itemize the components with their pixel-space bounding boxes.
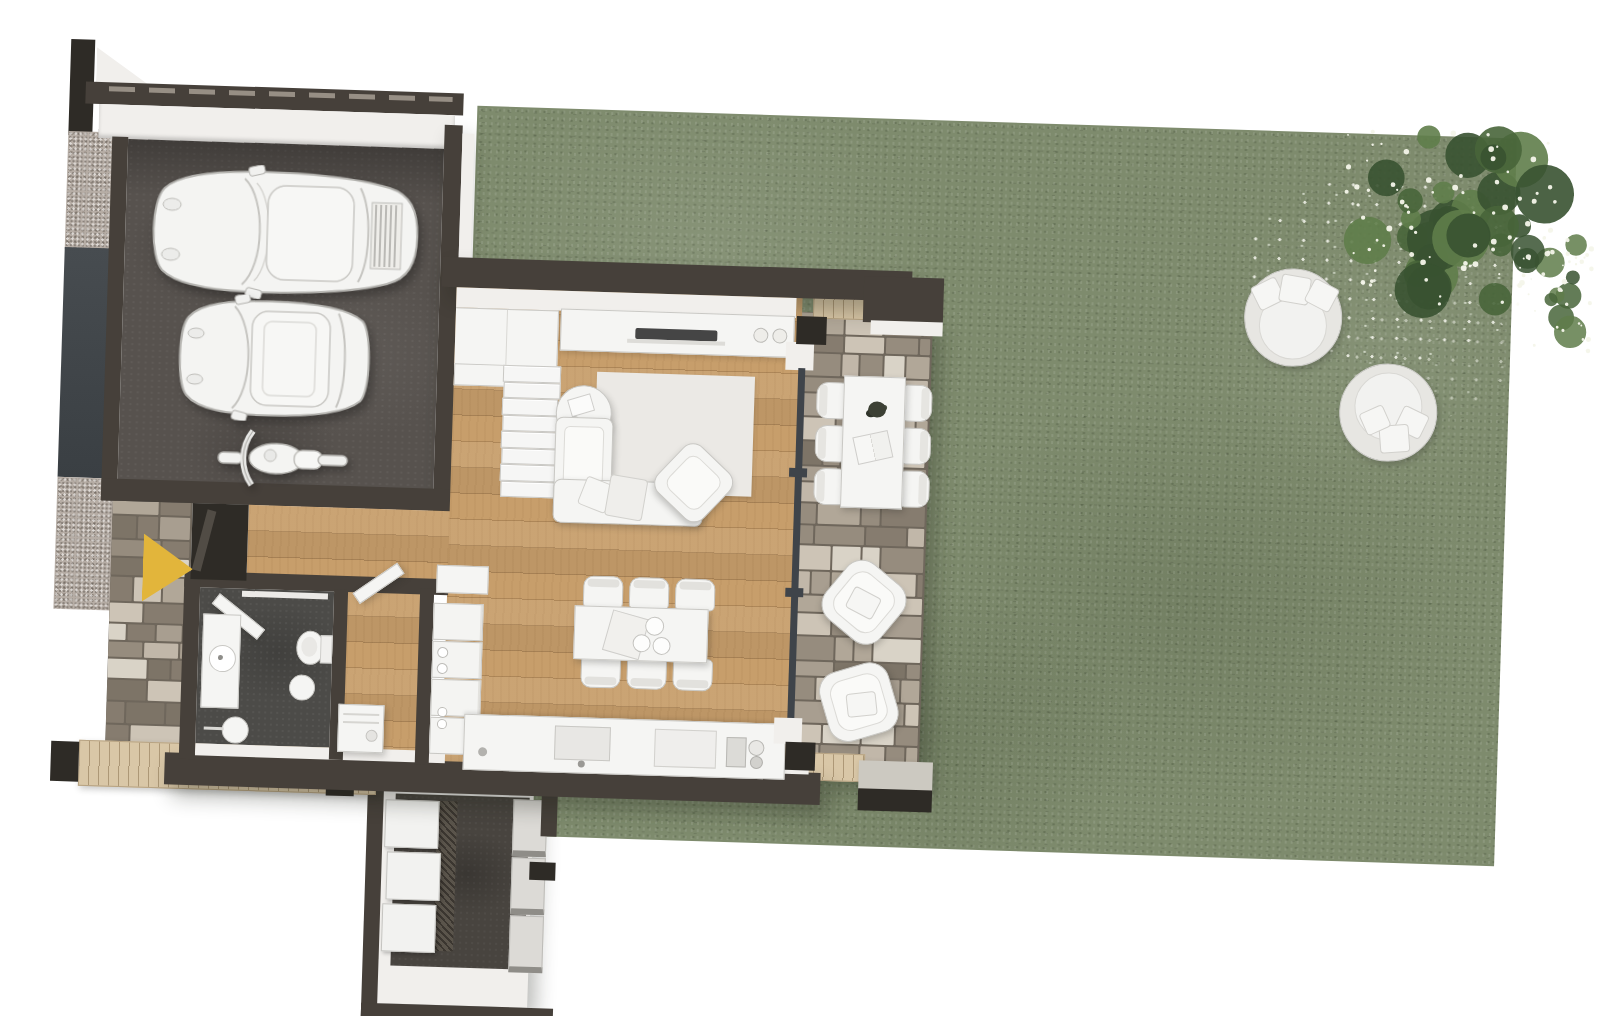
open-book	[852, 430, 893, 465]
utility-upper-cabinet	[436, 565, 489, 595]
appliance-unit	[433, 603, 484, 642]
tree-foliage	[1589, 246, 1594, 251]
sports-car	[141, 161, 427, 304]
chair-back	[633, 580, 665, 589]
tree-foliage	[1426, 177, 1432, 183]
tree-foliage	[1498, 273, 1500, 275]
tree-foliage	[1478, 282, 1511, 315]
outdoor-chair	[816, 382, 846, 420]
door-handle-tab	[785, 588, 803, 598]
stone-tile	[160, 517, 190, 539]
tree-foliage	[1528, 293, 1530, 295]
throw-blanket	[604, 474, 649, 522]
tree-foliage	[1344, 190, 1348, 194]
chair-back	[816, 471, 825, 502]
washing-machine	[337, 704, 384, 753]
outdoor-chair	[900, 470, 930, 508]
tree-foliage	[1586, 337, 1591, 342]
kitchen-counter	[463, 714, 787, 780]
stool-handle	[204, 727, 224, 731]
decor-bowl	[753, 328, 768, 343]
outdoor-dining-table	[840, 375, 906, 509]
tree-foliage	[1354, 184, 1359, 189]
outdoor-chair	[901, 427, 931, 465]
lounge-pillow	[845, 691, 877, 718]
chair-back	[630, 678, 662, 687]
chair-back	[919, 431, 928, 462]
armchair-cushion	[663, 452, 725, 514]
stone-tile	[147, 681, 185, 702]
chair-back	[818, 428, 827, 459]
stone-tile	[835, 637, 853, 661]
dining-chair	[629, 577, 670, 610]
stone-tile	[907, 665, 920, 679]
chair-back	[587, 579, 619, 588]
tree-foliage	[1389, 294, 1392, 297]
exterior-step	[508, 915, 544, 973]
tree-foliage	[1522, 273, 1526, 277]
stone-tile	[884, 356, 904, 379]
tree-foliage	[1589, 267, 1594, 272]
stone-tile	[860, 355, 883, 378]
stone-tile	[109, 602, 142, 622]
tree-foliage	[1374, 269, 1377, 272]
door-handle-tab	[789, 468, 807, 478]
stone-tile	[901, 680, 920, 703]
stone-tile	[881, 506, 925, 527]
tree-foliage	[1542, 236, 1546, 240]
stair-step	[503, 381, 560, 399]
patio-corner-wall	[863, 276, 944, 324]
stone-tile	[905, 705, 918, 726]
outdoor-chair	[814, 425, 844, 463]
vanity-sink	[200, 613, 241, 708]
outdoor-chair	[903, 384, 933, 422]
cooktop	[654, 729, 717, 769]
stone-tile	[845, 337, 884, 354]
stone-tile	[842, 354, 858, 377]
stone-tile	[126, 702, 165, 725]
stair-step	[501, 447, 557, 465]
tree-foliage	[1548, 228, 1553, 233]
garage-door-segments	[108, 86, 452, 102]
cabinet-seam	[505, 310, 508, 366]
stone-tile	[917, 575, 923, 597]
stone-tile	[108, 624, 126, 640]
dining-chair	[675, 578, 716, 611]
stair-step	[503, 365, 561, 383]
coffee-machine	[726, 737, 747, 768]
tree-foliage	[1347, 134, 1349, 136]
stone-tile	[108, 641, 142, 657]
tree-foliage	[1579, 260, 1584, 265]
stair-step	[502, 414, 560, 432]
compact-car	[169, 292, 381, 424]
stone-tile	[112, 516, 137, 538]
tree-foliage	[1371, 130, 1375, 134]
tree-foliage	[1534, 310, 1536, 312]
tree-foliage	[1367, 159, 1405, 197]
chair-back	[819, 385, 828, 416]
patio-corner-face	[870, 320, 942, 336]
sink-faucet	[578, 760, 585, 767]
stone-tile	[107, 679, 146, 700]
chair-back	[584, 676, 616, 685]
wall-stub	[785, 742, 816, 771]
wall-stub	[796, 316, 827, 345]
tree-foliage	[1585, 253, 1589, 257]
cellar-step-block	[529, 862, 556, 881]
washer-line	[343, 713, 379, 716]
small-appliance	[750, 756, 763, 769]
stone-tile	[106, 701, 125, 723]
stone-tile	[144, 642, 179, 658]
tree-foliage	[1404, 149, 1410, 155]
stone-tile	[919, 339, 930, 355]
tree-foliage	[1547, 142, 1550, 145]
storage-box	[385, 851, 440, 901]
entry-vestibule	[190, 503, 248, 581]
stone-tile	[128, 624, 155, 640]
flowering-tree	[1290, 101, 1598, 372]
stone-tile	[908, 528, 924, 546]
tree-foliage	[1346, 164, 1351, 169]
dining-table	[573, 605, 709, 663]
counter-fixture	[478, 747, 487, 756]
floor-plan-canvas	[0, 0, 1598, 1016]
chair-back	[676, 679, 708, 688]
stone-tile	[111, 558, 146, 576]
tree-foliage	[1343, 216, 1392, 265]
storage-box	[384, 799, 439, 849]
stone-tile	[881, 547, 924, 572]
chair-back	[921, 388, 930, 419]
stone-tile	[866, 527, 907, 546]
floor-plan	[0, 0, 1598, 1016]
tree-foliage	[1568, 260, 1571, 263]
tree-foliage	[1533, 344, 1536, 347]
tree-foliage	[1450, 131, 1456, 137]
tree-foliage	[1370, 279, 1374, 283]
deck-post	[50, 741, 79, 782]
toilet-tank	[320, 635, 333, 663]
chair-back	[679, 581, 711, 590]
stair-step	[500, 480, 557, 498]
stair-step	[500, 464, 558, 482]
staircase	[499, 365, 559, 499]
plate	[632, 634, 651, 653]
stone-tile	[107, 658, 146, 679]
motorcycle	[213, 424, 351, 496]
tree-foliage	[1371, 143, 1374, 146]
washer-line	[343, 721, 379, 724]
plate	[645, 616, 665, 636]
kettle	[748, 740, 764, 756]
stone-tile	[906, 356, 930, 379]
door-jamb	[774, 717, 803, 744]
tree-foliage	[1583, 256, 1585, 258]
plant-centerpiece	[868, 401, 886, 418]
sink	[554, 726, 611, 762]
chair-back	[918, 474, 927, 505]
cabinet-bench	[454, 363, 507, 387]
stone-tile	[138, 517, 158, 539]
outdoor-chair	[813, 468, 843, 506]
front-door	[192, 509, 217, 571]
stair-step	[502, 398, 558, 416]
wall-cabinets	[454, 307, 559, 368]
tree-foliage	[1380, 143, 1382, 145]
storage-box	[381, 903, 436, 953]
tree-foliage	[1566, 270, 1580, 284]
hallway-floor	[247, 505, 451, 581]
tray-item	[567, 393, 595, 417]
tree-foliage	[1588, 301, 1592, 305]
stair-step	[501, 431, 558, 449]
stone-tile	[156, 625, 182, 641]
stone-tile	[790, 661, 833, 676]
tree-foliage	[1586, 349, 1591, 354]
stone-tile	[110, 577, 133, 601]
stone-tile	[873, 638, 921, 663]
tree-foliage	[1575, 256, 1578, 259]
washer-dial	[365, 730, 377, 742]
tree-foliage	[1369, 283, 1373, 287]
plate	[652, 637, 671, 656]
concrete-step-riser	[857, 788, 932, 812]
door-jamb	[785, 342, 814, 371]
tree-foliage	[1417, 125, 1441, 149]
stone-tile	[144, 604, 188, 625]
stone-tile	[148, 659, 170, 679]
toilet-seat	[301, 637, 318, 657]
tree-foliage	[1575, 263, 1577, 265]
stone-tile	[814, 525, 864, 544]
tv-console	[560, 309, 795, 358]
tree-foliage	[1356, 203, 1360, 207]
tree-foliage	[1367, 188, 1371, 192]
dining-chair	[583, 575, 624, 608]
stone-tile	[895, 727, 918, 745]
tree-foliage	[1366, 160, 1368, 162]
stone-tile	[886, 338, 918, 355]
